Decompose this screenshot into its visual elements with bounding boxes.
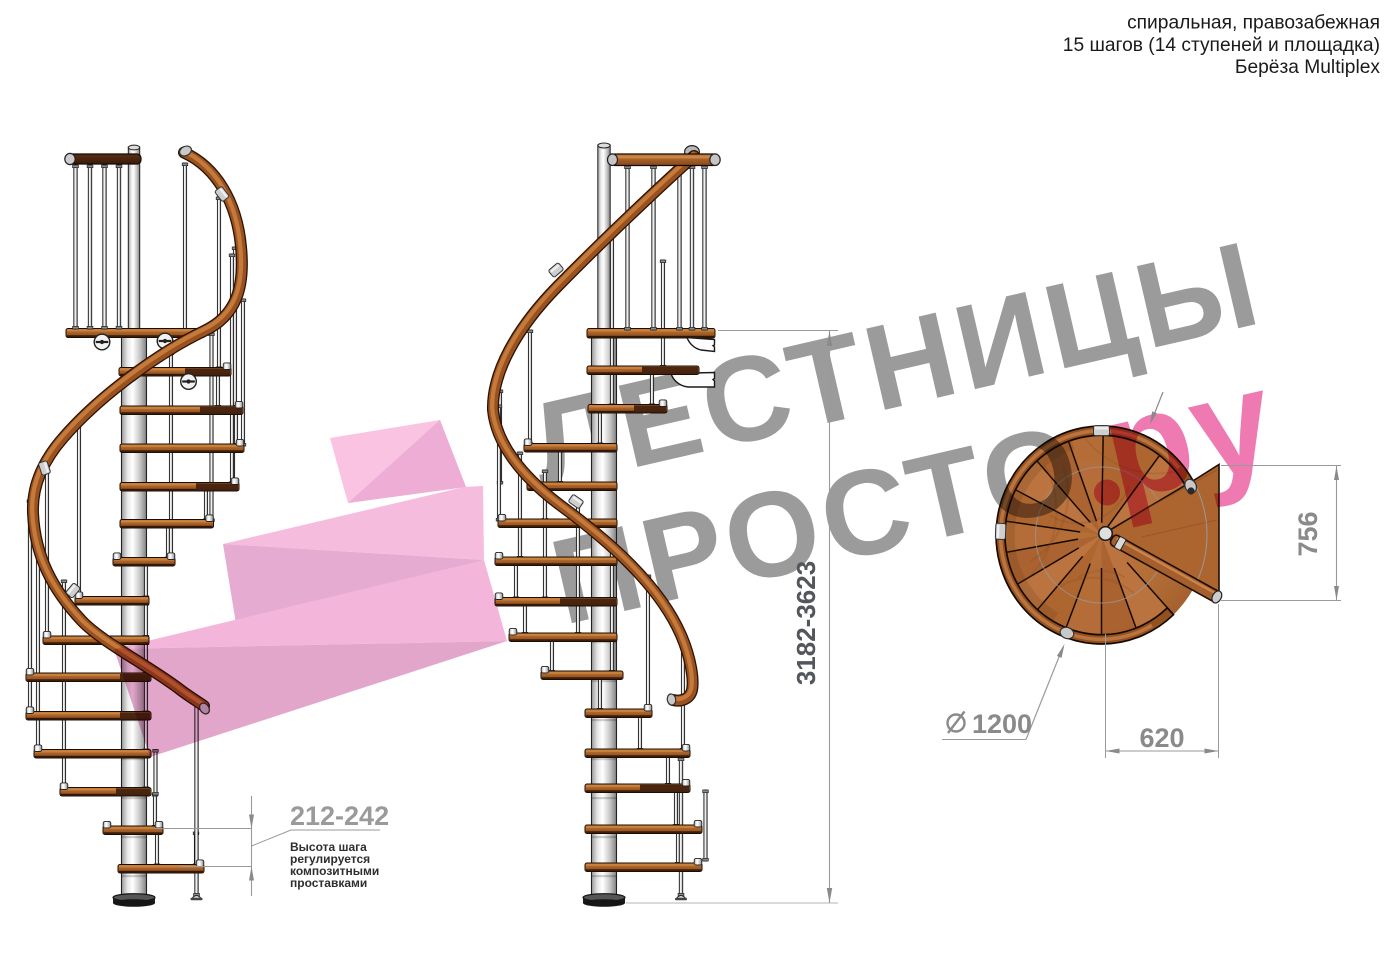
svg-text:212-242: 212-242 bbox=[290, 801, 389, 831]
svg-text:756: 756 bbox=[1293, 511, 1323, 556]
svg-text:спиральная, правозабежная: спиральная, правозабежная bbox=[1127, 13, 1380, 34]
svg-text:проставками: проставками bbox=[290, 876, 367, 890]
svg-text:3182-3623: 3182-3623 bbox=[791, 561, 821, 685]
svg-text:1200: 1200 bbox=[972, 709, 1032, 739]
svg-text:Берёза Multiplex: Берёза Multiplex bbox=[1235, 57, 1381, 78]
svg-text:15 шагов (14 ступеней и площад: 15 шагов (14 ступеней и площадка) bbox=[1063, 35, 1380, 56]
svg-text:620: 620 bbox=[1139, 723, 1184, 753]
